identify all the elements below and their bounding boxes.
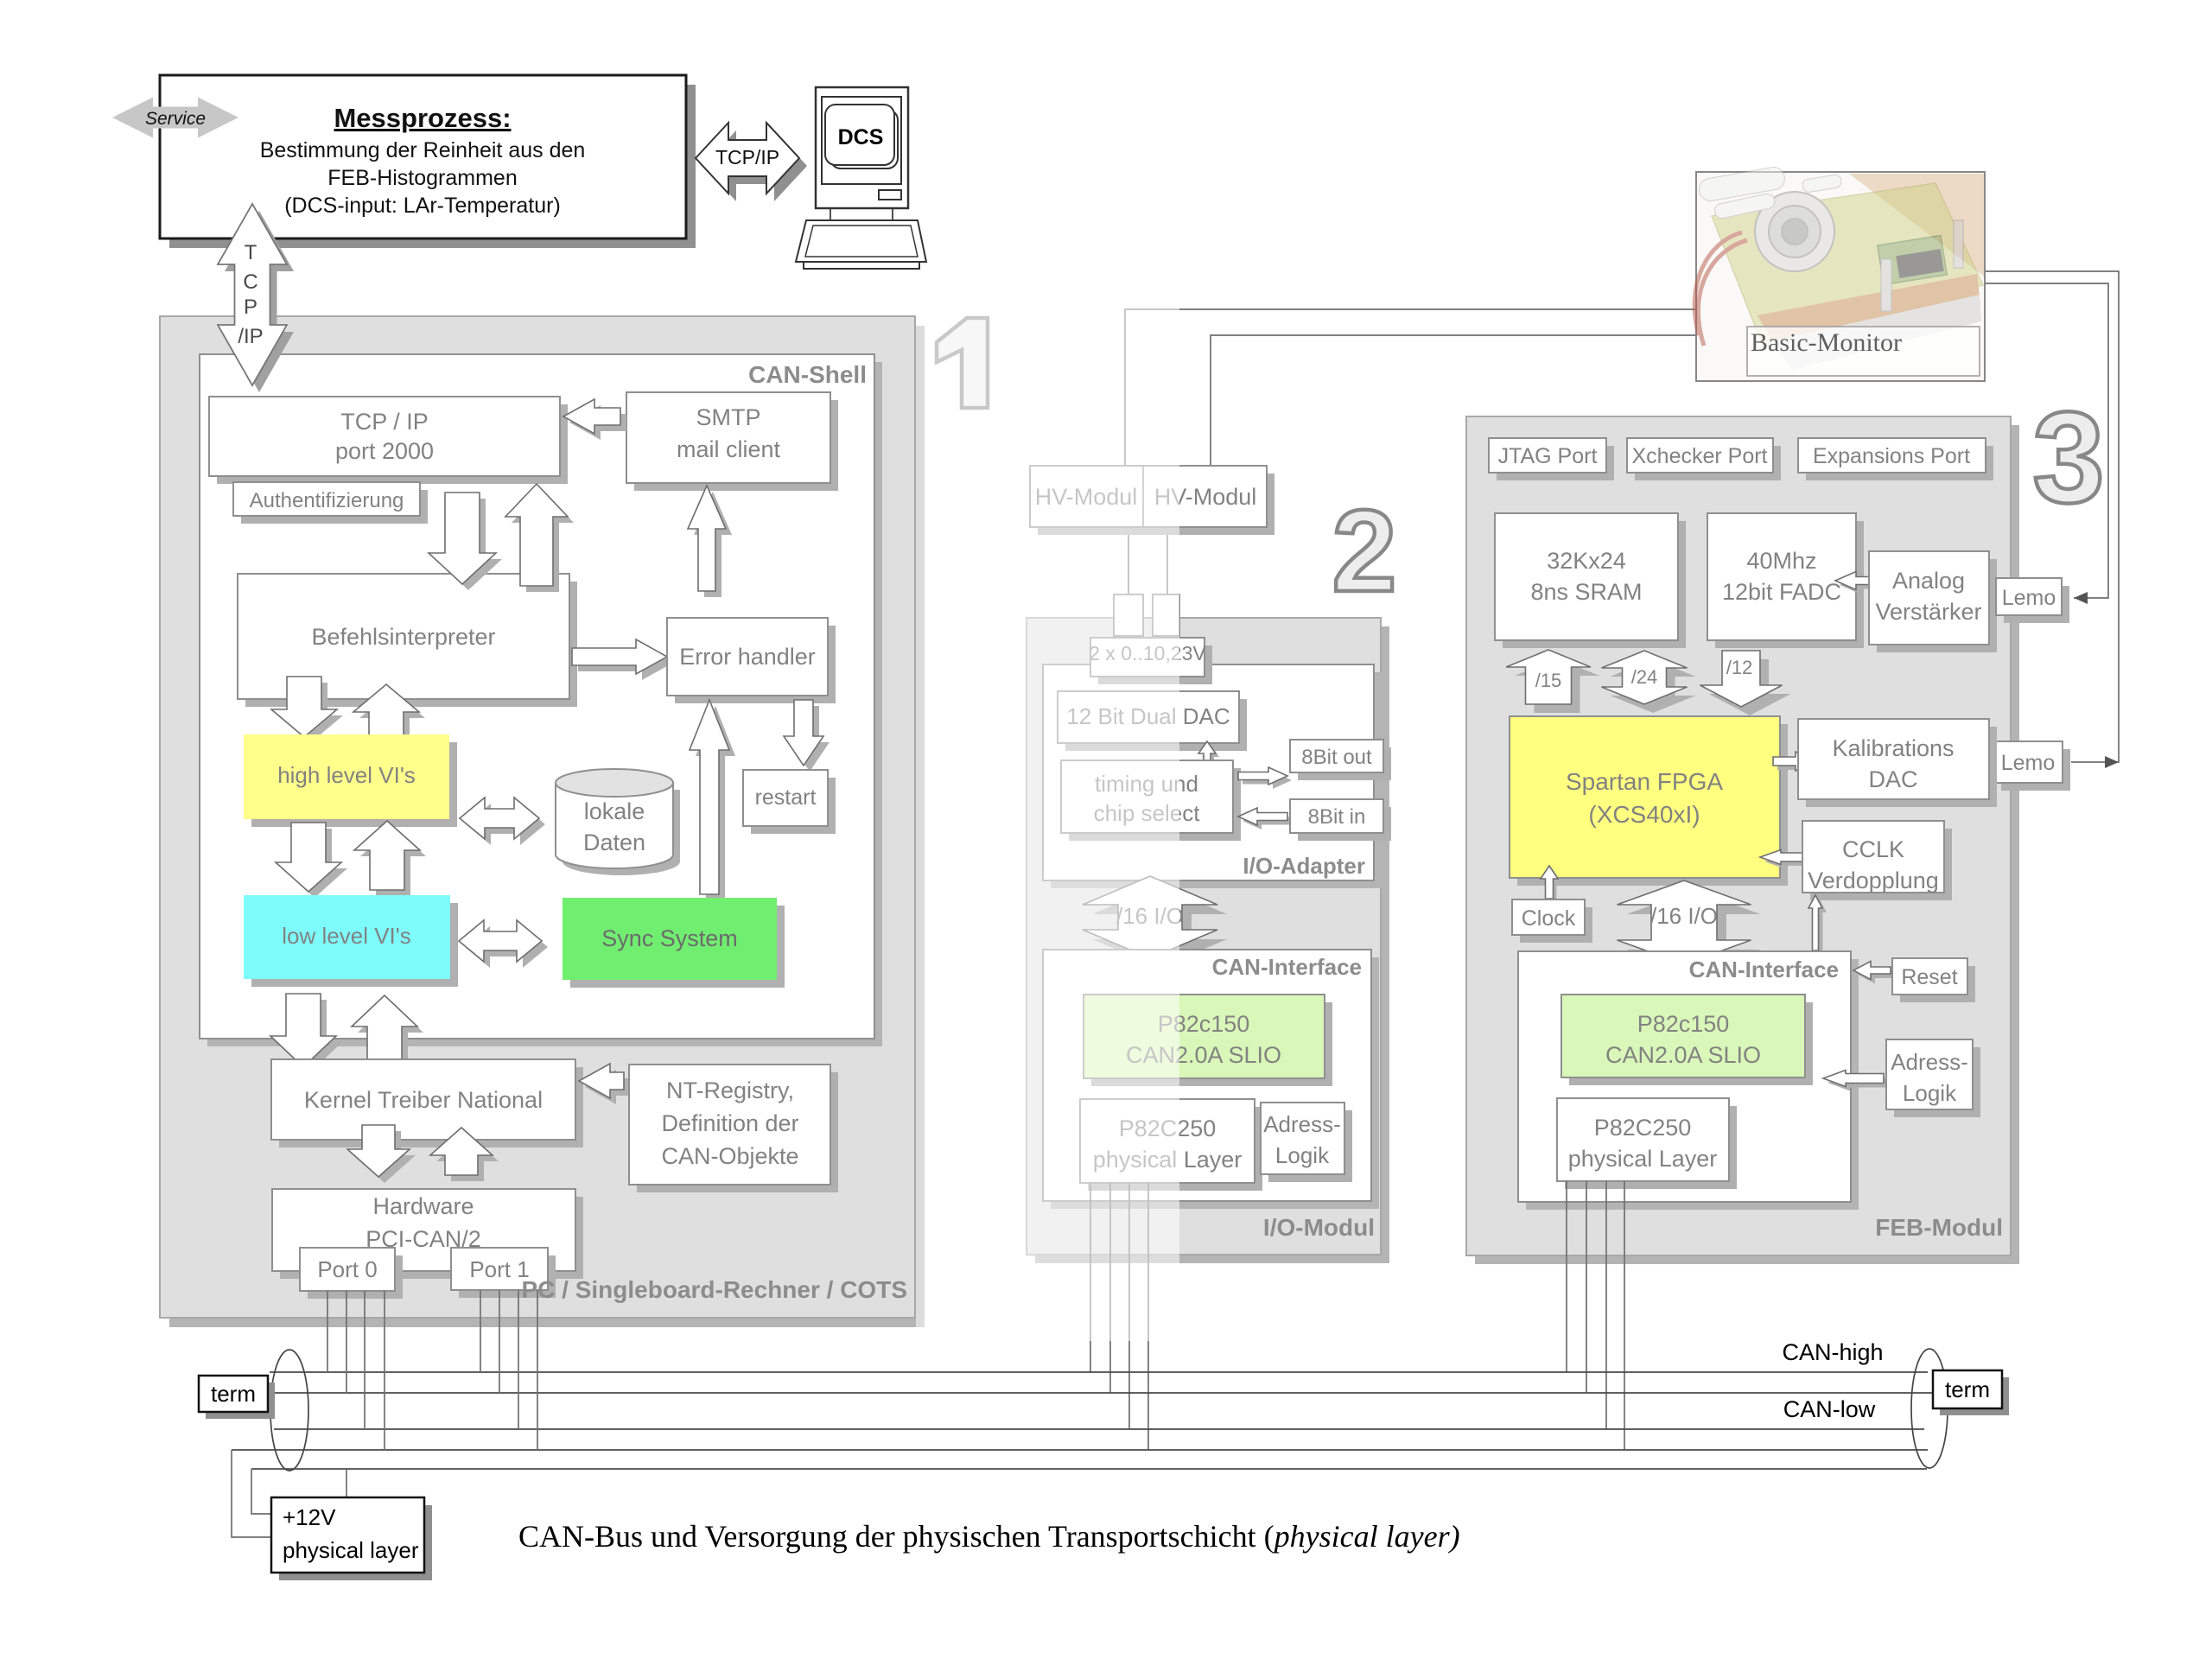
svg-text:/15: /15	[1535, 670, 1562, 691]
svg-text:restart: restart	[755, 785, 817, 810]
svg-text:Logik: Logik	[1903, 1080, 1957, 1106]
svg-text:Lemo: Lemo	[2001, 751, 2056, 775]
svg-text:Hardware: Hardware	[372, 1193, 474, 1219]
svg-text:Reset: Reset	[1901, 965, 1957, 989]
svg-text:/16 I/O: /16 I/O	[1650, 903, 1718, 929]
svg-text:Kernel Treiber National: Kernel Treiber National	[304, 1087, 543, 1113]
svg-text:Spartan FPGA: Spartan FPGA	[1566, 768, 1723, 795]
svg-text:8Bit out: 8Bit out	[1301, 746, 1372, 769]
svg-text:Verdopplung: Verdopplung	[1808, 868, 1939, 893]
svg-text:CAN-low: CAN-low	[1783, 1396, 1876, 1422]
svg-text:DCS: DCS	[838, 125, 884, 149]
svg-text:P82C250: P82C250	[1594, 1115, 1692, 1141]
svg-text:Kalibrations: Kalibrations	[1832, 735, 1954, 761]
svg-text:TCP / IP: TCP / IP	[340, 409, 429, 435]
svg-text:Messprozess:: Messprozess:	[334, 103, 511, 133]
svg-text:T: T	[245, 241, 257, 264]
svg-text:FEB-Histogrammen: FEB-Histogrammen	[327, 166, 518, 190]
svg-text:/IP: /IP	[238, 325, 263, 348]
svg-text:NT-Registry,: NT-Registry,	[666, 1077, 794, 1103]
svg-text:Adress-: Adress-	[1891, 1049, 1968, 1075]
svg-text:SMTP: SMTP	[696, 404, 760, 430]
svg-text:2: 2	[1332, 486, 1396, 616]
svg-text:Analog: Analog	[1892, 568, 1965, 594]
svg-text:I/O-Modul: I/O-Modul	[1263, 1214, 1375, 1241]
svg-text:Lemo: Lemo	[2002, 586, 2056, 610]
svg-text:/24: /24	[1631, 666, 1658, 688]
svg-text:FEB-Modul: FEB-Modul	[1875, 1214, 2003, 1241]
svg-text:Clock: Clock	[1522, 906, 1576, 931]
svg-text:Daten: Daten	[583, 829, 645, 855]
svg-text:Port 0: Port 0	[317, 1256, 377, 1282]
svg-text:CAN-high: CAN-high	[1782, 1339, 1883, 1365]
svg-text:P82c150: P82c150	[1637, 1011, 1730, 1037]
svg-text:lokale: lokale	[584, 798, 645, 824]
svg-text:Authentifizierung: Authentifizierung	[250, 489, 404, 512]
svg-text:C: C	[243, 270, 257, 294]
svg-text:Logik: Logik	[1275, 1142, 1330, 1168]
svg-text:40Mhz: 40Mhz	[1746, 548, 1816, 574]
svg-text:port 2000: port 2000	[335, 438, 434, 464]
svg-text:3: 3	[2032, 385, 2104, 530]
svg-text:term: term	[211, 1381, 256, 1407]
svg-text:Xchecker Port: Xchecker Port	[1631, 444, 1767, 468]
svg-text:physical Layer: physical Layer	[1568, 1146, 1718, 1172]
svg-text:high level VI's: high level VI's	[277, 762, 416, 788]
svg-text:CAN-Shell: CAN-Shell	[748, 361, 867, 388]
svg-text:32Kx24: 32Kx24	[1547, 548, 1626, 574]
svg-text:Bestimmung der Reinheit aus de: Bestimmung der Reinheit aus den	[260, 138, 586, 162]
svg-text:(DCS-input: LAr-Temperatur): (DCS-input: LAr-Temperatur)	[284, 194, 561, 218]
svg-text:Error handler: Error handler	[679, 644, 816, 670]
svg-text:mail client: mail client	[677, 436, 781, 462]
svg-text:CAN2.0A SLIO: CAN2.0A SLIO	[1605, 1042, 1761, 1068]
svg-text:12bit FADC: 12bit FADC	[1722, 579, 1841, 605]
svg-text:CCLK: CCLK	[1842, 836, 1904, 862]
svg-text:Service: Service	[145, 109, 206, 129]
svg-text:TCP/IP: TCP/IP	[715, 146, 779, 168]
svg-text:8Bit in: 8Bit in	[1308, 805, 1366, 829]
svg-text:Definition der: Definition der	[661, 1110, 798, 1136]
svg-text:Verstärker: Verstärker	[1875, 599, 1981, 625]
svg-text:CAN-Objekte: CAN-Objekte	[661, 1143, 798, 1169]
svg-text:DAC: DAC	[1868, 766, 1917, 792]
svg-text:/12: /12	[1726, 657, 1753, 678]
svg-text:Sync System: Sync System	[601, 925, 738, 951]
svg-text:Port 1: Port 1	[469, 1256, 529, 1282]
svg-text:Expansions Port: Expansions Port	[1813, 444, 1970, 468]
svg-text:8ns SRAM: 8ns SRAM	[1530, 579, 1642, 605]
svg-text:JTAG Port: JTAG Port	[1498, 444, 1598, 468]
svg-text:CAN-Bus und Versorgung der phy: CAN-Bus und Versorgung der physischen Tr…	[518, 1519, 1460, 1554]
svg-text:Befehlsinterpreter: Befehlsinterpreter	[311, 624, 495, 650]
svg-text:Adress-: Adress-	[1263, 1111, 1341, 1137]
svg-text:low level VI's: low level VI's	[282, 923, 410, 949]
svg-text:physical layer: physical layer	[283, 1537, 419, 1563]
svg-text:term: term	[1945, 1376, 1990, 1402]
svg-text:I/O-Adapter: I/O-Adapter	[1243, 853, 1365, 879]
svg-text:+12V: +12V	[283, 1504, 336, 1530]
svg-text:P: P	[244, 296, 257, 319]
svg-text:(XCS40xI): (XCS40xI)	[1588, 801, 1700, 828]
svg-text:CAN-Interface: CAN-Interface	[1689, 957, 1839, 982]
svg-text:CAN-Interface: CAN-Interface	[1212, 954, 1362, 980]
svg-text:Basic-Monitor: Basic-Monitor	[1751, 328, 1902, 357]
svg-text:PC / Singleboard-Rechner / COT: PC / Singleboard-Rechner / COTS	[521, 1276, 907, 1303]
